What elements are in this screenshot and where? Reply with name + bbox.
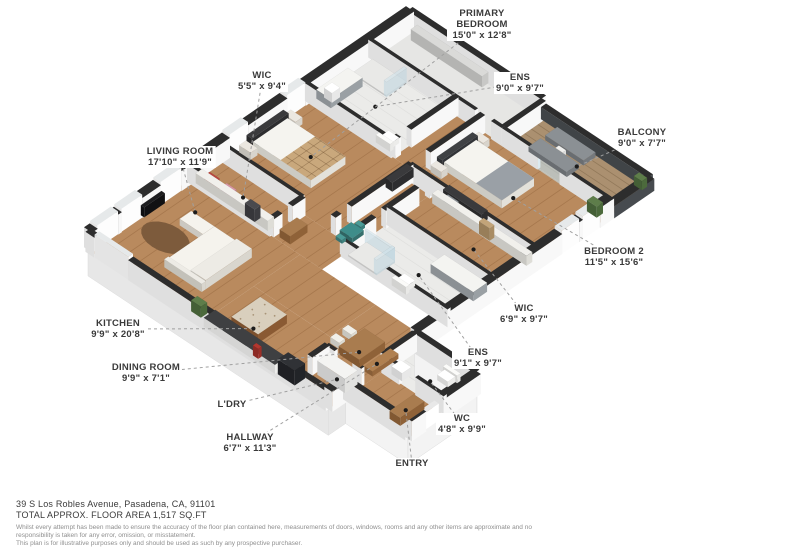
room-dimensions: 17'10" x 11'9" [147, 157, 214, 168]
room-name: PRIMARY BEDROOM [449, 8, 515, 30]
disclaimer-line-1: Whilst every attempt has been made to en… [16, 524, 556, 540]
room-label-kitchen: KITCHEN9'9" x 20'8" [89, 318, 147, 340]
room-name: DINING ROOM [112, 362, 180, 373]
room-dimensions: 4'8" x 9'9" [438, 424, 486, 435]
room-dimensions: 9'9" x 7'1" [112, 373, 180, 384]
room-name: ENTRY [395, 458, 428, 469]
room-dimensions: 9'0" x 9'7" [496, 83, 544, 94]
room-name: WIC [500, 303, 548, 314]
room-dimensions: 6'7" x 11'3" [224, 443, 277, 454]
room-dimensions: 5'5" x 9'4" [238, 81, 286, 92]
floorplan-page: LIVING ROOM17'10" x 11'9"KITCHEN9'9" x 2… [0, 0, 793, 560]
room-name: BALCONY [618, 127, 667, 138]
disclaimer-line-2: This plan is for illustrative purposes o… [16, 540, 556, 548]
room-label-wc: WC4'8" x 9'9" [436, 413, 488, 435]
room-label-ens-primary: ENS9'0" x 9'7" [494, 72, 546, 94]
room-label-balcony: BALCONY9'0" x 7'7" [616, 127, 669, 149]
room-dimensions: 9'9" x 20'8" [91, 329, 145, 340]
room-label-ens-2: ENS9'1" x 9'7" [452, 347, 504, 369]
room-name: ENS [496, 72, 544, 83]
floorplan-canvas [0, 0, 793, 560]
room-name: WIC [238, 70, 286, 81]
room-name: LIVING ROOM [147, 146, 214, 157]
disclaimer-text: Whilst every attempt has been made to en… [16, 524, 556, 548]
room-dimensions: 9'0" x 7'7" [618, 138, 667, 149]
room-name: BEDROOM 2 [584, 246, 644, 257]
room-label-hallway: HALLWAY6'7" x 11'3" [222, 432, 279, 454]
footer: 39 S Los Robles Avenue, Pasadena, CA, 91… [16, 499, 576, 548]
room-label-wic-2: WIC6'9" x 9'7" [498, 303, 550, 325]
room-label-primary-bedroom: PRIMARY BEDROOM15'0" x 12'8" [447, 8, 517, 41]
room-name: L'DRY [217, 399, 246, 410]
room-label-dining-room: DINING ROOM9'9" x 7'1" [110, 362, 182, 384]
room-name: HALLWAY [224, 432, 277, 443]
room-dimensions: 15'0" x 12'8" [449, 30, 515, 41]
room-label-ldry: L'DRY [215, 399, 248, 410]
room-dimensions: 9'1" x 9'7" [454, 358, 502, 369]
floor-area-line: TOTAL APPROX. FLOOR AREA 1,517 SQ.FT [16, 510, 576, 521]
room-label-entry: ENTRY [393, 458, 430, 469]
room-label-bedroom-2: BEDROOM 211'5" x 15'6" [582, 246, 646, 268]
room-name: ENS [454, 347, 502, 358]
address-line: 39 S Los Robles Avenue, Pasadena, CA, 91… [16, 499, 576, 510]
room-label-wic-primary: WIC5'5" x 9'4" [236, 70, 288, 92]
room-dimensions: 11'5" x 15'6" [584, 257, 644, 268]
room-label-living-room: LIVING ROOM17'10" x 11'9" [145, 146, 216, 168]
room-name: WC [438, 413, 486, 424]
room-name: KITCHEN [91, 318, 145, 329]
room-dimensions: 6'9" x 9'7" [500, 314, 548, 325]
